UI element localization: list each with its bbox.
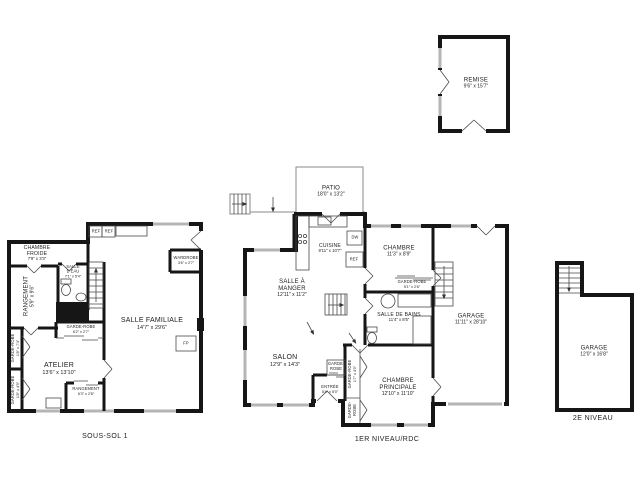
floor-name: 2E NIVEAU <box>553 415 633 423</box>
room-label-patio: PATIO 18'0" x 13'2" <box>296 186 366 199</box>
room-dims: 9'6" x 15'7" <box>446 85 506 91</box>
room-dims: 1'8" x 4'9" <box>16 371 20 409</box>
level2-plan <box>557 263 632 410</box>
main-stairs-icon <box>325 294 347 315</box>
room-label-salle-de-bains: SALLE DE BAINS 11'4" x 8'5" <box>365 313 433 324</box>
label-dw: DW <box>351 236 358 241</box>
floor-label-rdc: 1ER NIVEAU/RDC <box>332 436 442 444</box>
sink-icon <box>76 293 86 301</box>
fixture-box <box>46 398 61 408</box>
chimney-block <box>197 318 204 331</box>
room-dims: 1'7" x 4'0" <box>353 356 357 391</box>
label-fireplace: FP <box>183 342 188 347</box>
room-label-rangement-bottom: RANGEMENT 6'3" x 2'8" <box>69 388 103 397</box>
appliance-label: DW <box>351 236 358 241</box>
room-label-garde-robe-chambre: GARDE-ROBE 5'1" x 2'6" <box>396 281 427 290</box>
room-dims: 12'0" x 16'8" <box>564 353 624 359</box>
floor-label-sous-sol: SOUS-SOL 1 <box>60 433 150 441</box>
room-name: ATELIER <box>19 362 99 370</box>
room-dims: 12'9" x 14'3" <box>250 362 320 368</box>
room-label-entree: ENTRÉE 5'4" x 5'0" <box>316 386 343 395</box>
room-name: SALLE D'EAU <box>59 265 86 274</box>
room-dims: 12'10" x 11'10" <box>369 392 427 398</box>
room-dims: 3'6" x 2'7" <box>172 261 199 265</box>
room-label-salle-deau: SALLE D'EAU 7'1" x 5'4" <box>59 265 86 279</box>
appliance-label: REF <box>105 230 114 235</box>
room-name: CHAMBRE FROIDE <box>17 246 56 258</box>
room-label-salle-familiale: SALLE FAMILIALE 14'7" x 29'6" <box>107 317 197 331</box>
room-dims: 6'3" x 2'8" <box>69 392 103 396</box>
label-ref-2: REF <box>105 230 114 235</box>
room-name: SALLE À MANGER <box>268 279 316 293</box>
room-dims: 5'4" x 5'0" <box>316 390 343 394</box>
room-dims: 5'9" x 9'6" <box>31 268 37 324</box>
room-dims: 18'0" x 13'2" <box>296 193 366 199</box>
room-label-garage-rdc: GARAGE 11'11" x 28'10" <box>438 314 504 327</box>
room-dims: 7'1" x 5'4" <box>59 275 86 279</box>
room-dims: 12'11" x 11'2" <box>268 293 316 299</box>
room-label-garde-robe-entree: GARDE-ROBE <box>328 362 344 371</box>
floorplan-page: CHAMBRE FROIDE 7'9" x 3'3" RANGEMENT 5'9… <box>0 0 640 480</box>
room-label-garde-robe-couloir-2: GARDE-ROBE <box>348 396 357 423</box>
floor-label-niveau2: 2E NIVEAU <box>553 415 633 423</box>
room-label-salon: SALON 12'9" x 14'3" <box>250 354 320 368</box>
label-ref-kitchen: REF <box>350 258 359 263</box>
room-dims: 11'3" x 8'9" <box>369 253 429 259</box>
room-name: GARDE-ROBE <box>328 362 344 371</box>
room-name: GARDE-ROBE <box>348 396 357 423</box>
room-label-cuisine: CUISINE 9'11" x 10'7" <box>307 244 353 255</box>
room-label-garde-robe-mid: GARDE-ROBE 6'2" x 2'7" <box>62 326 100 335</box>
level2-stairs-icon <box>559 266 580 293</box>
room-label-remise: REMISE 9'6" x 15'7" <box>446 78 506 91</box>
room-label-rangement-left: RANGEMENT 5'9" x 9'6" <box>24 268 37 324</box>
room-label-salle-a-manger: SALLE À MANGER 12'11" x 11'2" <box>268 279 316 299</box>
room-label-garage-niveau2: GARAGE 12'0" x 16'8" <box>564 346 624 359</box>
toilet-icon <box>61 279 71 296</box>
room-name: SALLE FAMILIALE <box>107 317 197 325</box>
room-label-chambre-principale: CHAMBRE PRINCIPALE 12'10" x 11'10" <box>369 378 427 398</box>
room-dims: 7'9" x 3'3" <box>17 257 56 262</box>
room-dims: 11'4" x 8'5" <box>365 318 433 323</box>
room-dims: 14'7" x 29'6" <box>107 325 197 331</box>
floor-name: 1ER NIVEAU/RDC <box>332 436 442 444</box>
room-label-chambre-froide: CHAMBRE FROIDE 7'9" x 3'3" <box>17 246 56 263</box>
appliance-label: REF <box>350 258 359 263</box>
appliance-label: REF <box>92 230 101 235</box>
mechanical-block <box>56 302 89 322</box>
room-label-atelier: ATELIER 13'6" x 13'10" <box>19 362 99 376</box>
label-ref-1: REF <box>92 230 101 235</box>
room-label-garde-robe-couloir: GARDE-ROBE 1'7" x 4'0" <box>349 356 358 391</box>
room-label-chambre: CHAMBRE 11'3" x 8'9" <box>369 246 429 259</box>
basement-stairs-icon <box>88 242 104 338</box>
garage-stairs-icon <box>435 262 453 306</box>
circulation-arrow <box>349 333 355 342</box>
room-label-wardrobe: WARDROBE 3'6" x 2'7" <box>172 257 199 266</box>
room-dims: 11'11" x 28'10" <box>438 321 504 327</box>
counter <box>116 226 147 236</box>
room-name: CHAMBRE PRINCIPALE <box>369 378 427 392</box>
fireplace-label: FP <box>183 342 188 347</box>
room-name: SALON <box>250 354 320 362</box>
room-dims: 13'6" x 13'10" <box>19 370 99 376</box>
room-dims: 5'1" x 2'6" <box>396 285 427 289</box>
patio-stairs-icon <box>230 194 250 214</box>
floorplan-drawing <box>0 0 640 480</box>
room-dims: 9'11" x 10'7" <box>307 249 353 254</box>
room-label-garde-robe-bottom-left: GARDE-ROBE 1'8" x 4'9" <box>12 371 21 409</box>
floor-name: SOUS-SOL 1 <box>60 433 150 441</box>
circulation-arrow <box>307 322 313 333</box>
room-dims: 6'2" x 2'7" <box>62 330 100 334</box>
